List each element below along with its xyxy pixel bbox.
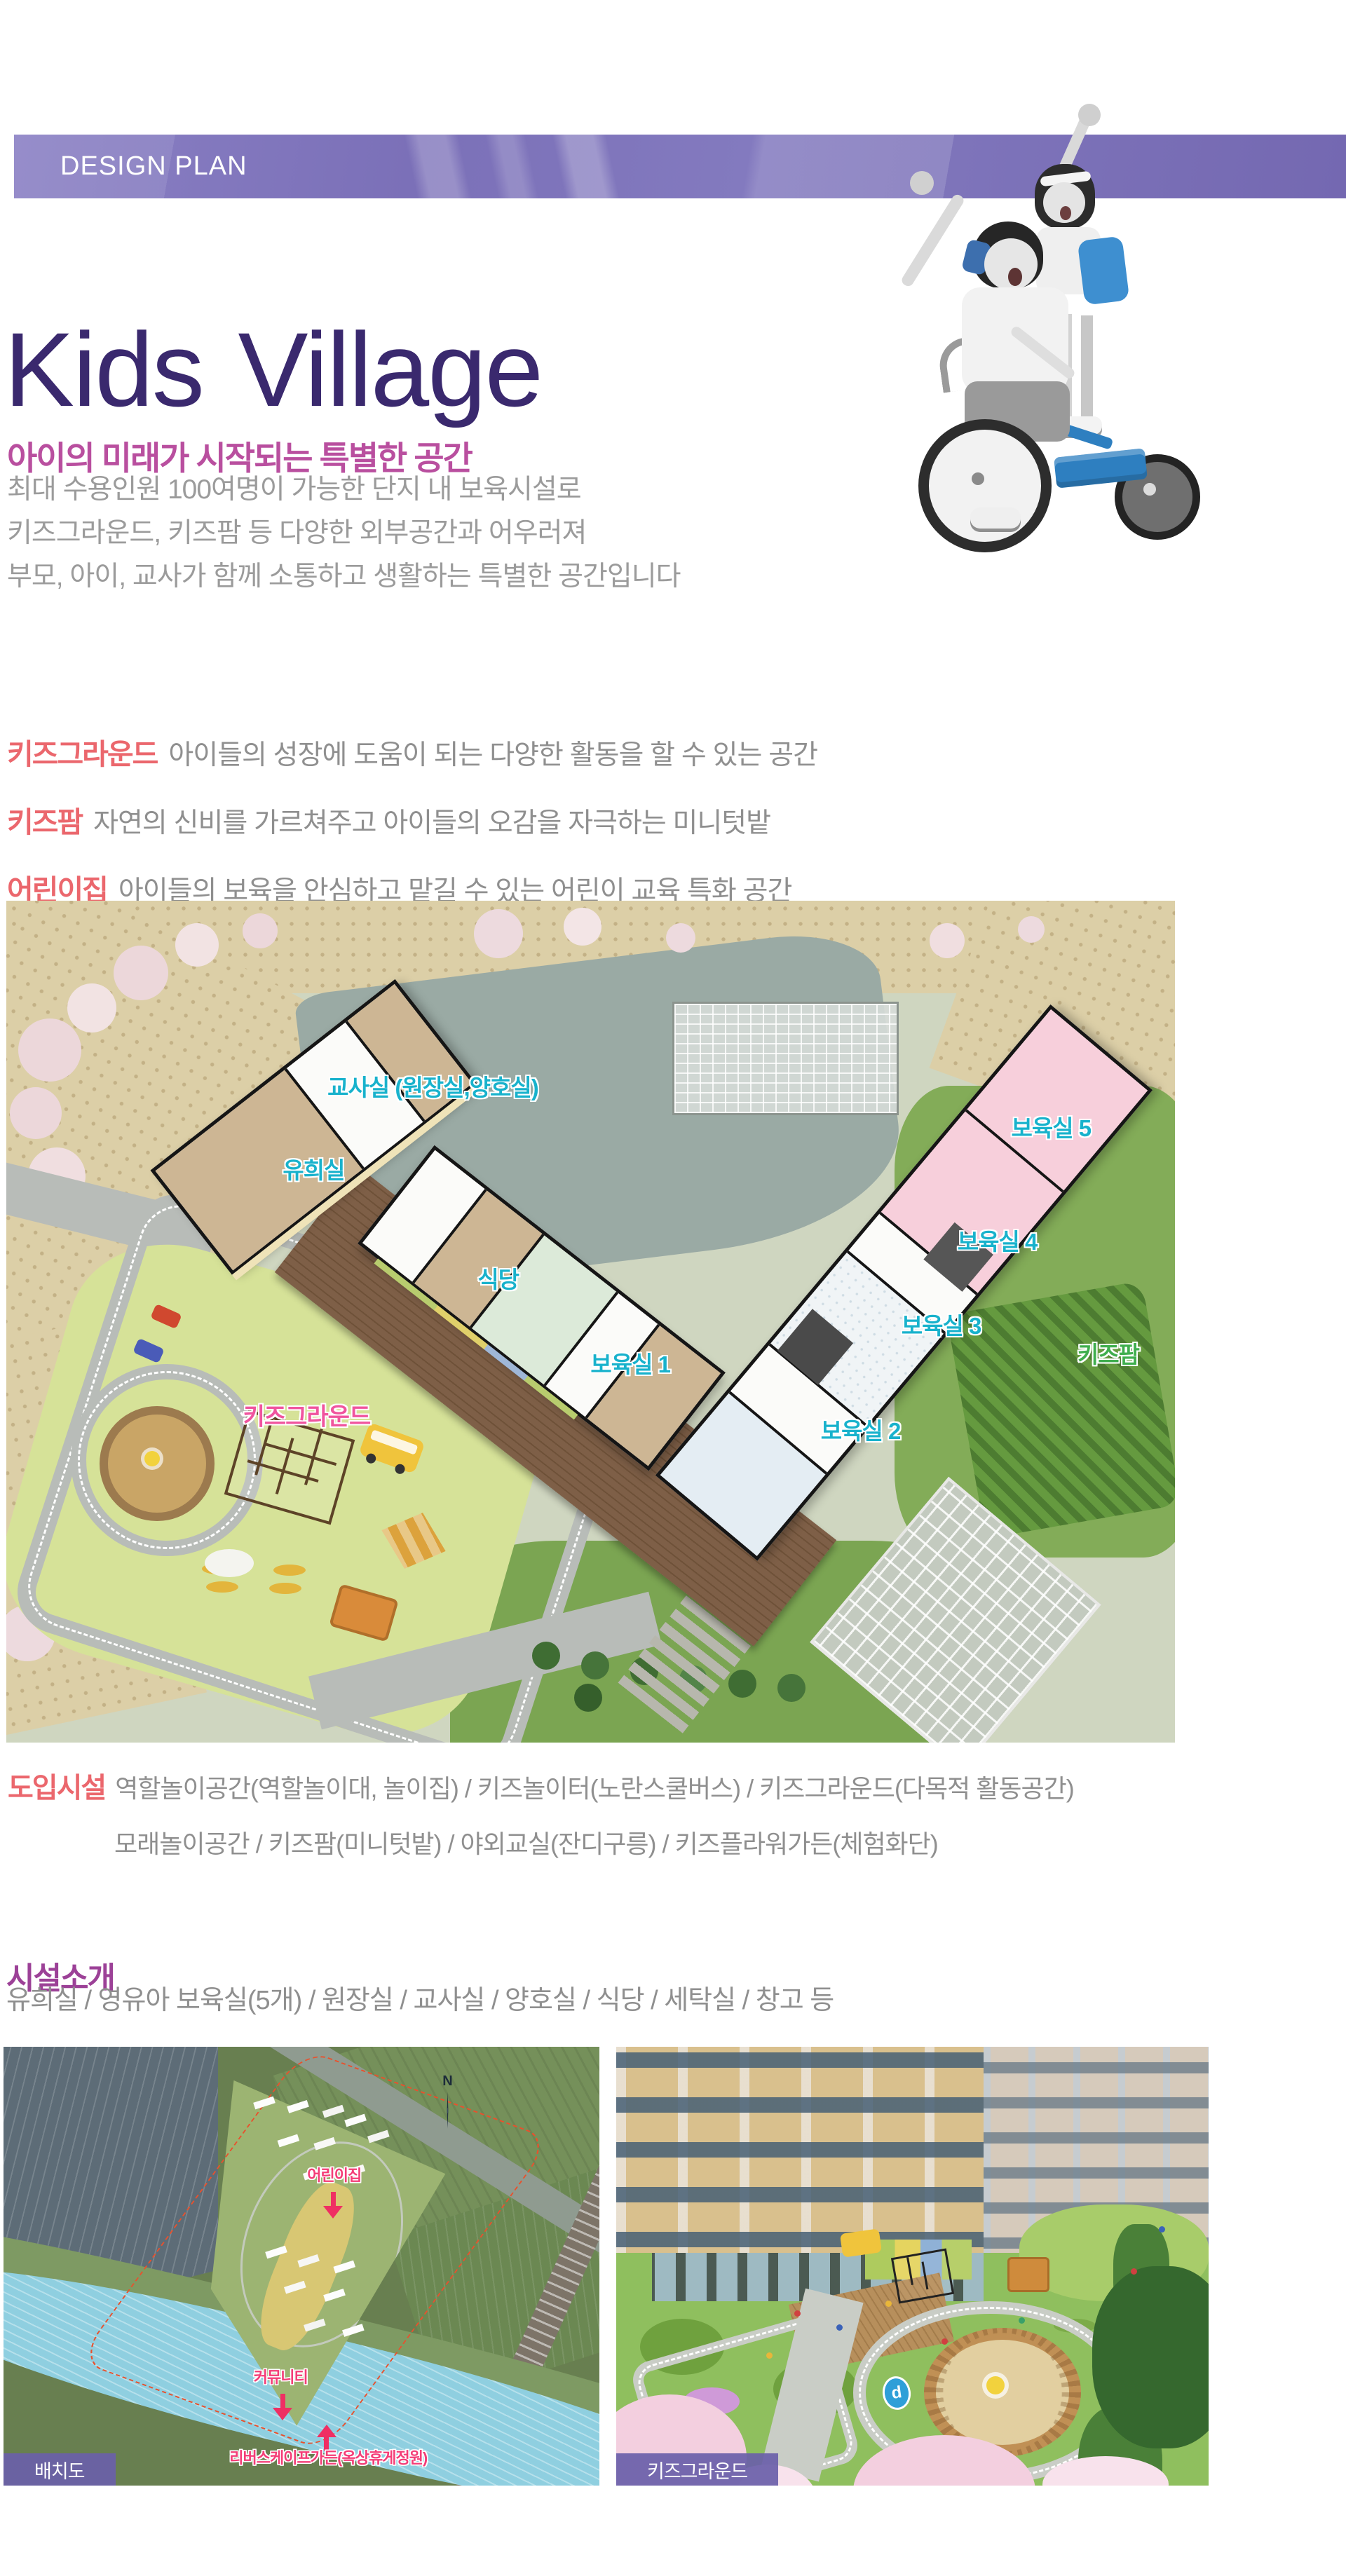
page-title: Kids Village <box>4 315 542 425</box>
plan-label-nursery1: 보육실 1 <box>590 1346 670 1379</box>
children-figures <box>794 2310 801 2317</box>
play-structure <box>1007 2257 1049 2292</box>
kids-photo <box>897 104 1192 587</box>
compass-star-icon <box>445 2092 451 2129</box>
hero-body-line: 키즈그라운드, 키즈팜 등 다양한 외부공간과 어우러져 <box>7 512 681 555</box>
plan-label-nursery3: 보육실 3 <box>902 1307 981 1341</box>
feature-row: 키즈그라운드아이들의 성장에 도움이 되는 다양한 활동을 할 수 있는 공간 <box>7 730 817 772</box>
hero-body-line: 최대 수용인원 100여명이 가능한 단지 내 보육시설로 <box>7 468 681 512</box>
plan-label-teachers-room: 교사실 (원장실,양호실) <box>327 1069 538 1103</box>
feature-desc: 자연의 신비를 가르쳐주고 아이들의 오감을 자극하는 미니텃밭 <box>93 808 770 838</box>
compass: N <box>427 2073 469 2137</box>
feature-desc: 아이들의 성장에 도움이 되는 다양한 활동을 할 수 있는 공간 <box>168 740 817 770</box>
plan-label-nursery2: 보육실 2 <box>821 1412 901 1446</box>
intro-text: 모래놀이공간 / 키즈팜(미니텃밭) / 야외교실(잔디구릉) / 키즈플라워가… <box>114 1829 938 1858</box>
site-label-community: 커뮤니티 <box>254 2365 308 2387</box>
compass-north-label: N <box>427 2073 469 2090</box>
photo-shape <box>1008 268 1022 286</box>
glass-canopy <box>672 1002 899 1115</box>
feature-label: 키즈팜 <box>7 806 82 838</box>
maze <box>891 2249 954 2304</box>
site-plan-badge: 배치도 <box>4 2453 116 2486</box>
site-label-riverscape: 리버스케이프가든(옥상휴게정원) <box>229 2446 427 2468</box>
site-plan-image: N 어린이집 커뮤니티 리버스케이프가든(옥상휴게정원) 배치도 <box>4 2047 599 2486</box>
plan-label-kids-farm: 키즈팜 <box>1078 1336 1139 1370</box>
cherry-blossoms <box>18 1018 81 1082</box>
sand-pit <box>100 1406 215 1521</box>
plan-label-dining: 식당 <box>477 1261 519 1295</box>
plan-label-nursery4: 보육실 4 <box>958 1223 1038 1257</box>
hero-body-line: 부모, 아이, 교사가 함께 소통하고 생활하는 특별한 공간입니다 <box>7 555 681 599</box>
plan-label-nursery5: 보육실 5 <box>1011 1110 1091 1143</box>
plan-label-kids-ground: 키즈그라운드 <box>243 1397 371 1431</box>
photo-shape <box>1078 104 1101 126</box>
arrow-down-icon <box>272 2394 293 2423</box>
photo-shape <box>1060 206 1071 220</box>
photo-shape <box>962 287 1068 393</box>
feature-row: 키즈팜자연의 신비를 가르쳐주고 아이들의 오감을 자극하는 미니텃밭 <box>7 798 817 840</box>
feature-label: 키즈그라운드 <box>7 738 157 770</box>
trees <box>1092 2266 1209 2448</box>
intro-label: 도입시설 <box>8 1773 105 1804</box>
tricycle-front-wheel <box>918 419 1052 552</box>
page: DESIGN PLAN Kids Village 아이의 미래가 시 <box>0 0 1346 2576</box>
intro-facilities: 도입시설역할놀이공간(역할놀이대, 놀이집) / 키즈놀이터(노란스쿨버스) /… <box>8 1765 1074 1860</box>
intro-row: 도입시설역할놀이공간(역할놀이대, 놀이집) / 키즈놀이터(노란스쿨버스) /… <box>8 1765 1074 1806</box>
banner-label: DESIGN PLAN <box>60 135 247 198</box>
trees <box>532 1642 560 1670</box>
apartment-facade <box>616 2047 984 2253</box>
site-label-daycare: 어린이집 <box>307 2163 361 2186</box>
facility-intro-body: 유희실 / 영유아 보육실(5개) / 원장실 / 교사실 / 양호실 / 식당… <box>6 1978 834 2017</box>
picnic-table <box>205 1549 254 1577</box>
intro-row: 모래놀이공간 / 키즈팜(미니텃밭) / 야외교실(잔디구릉) / 키즈플라워가… <box>114 1824 1074 1860</box>
floor-plan-image: 교사실 (원장실,양호실) 유희실 보육실 5 보육실 4 보육실 3 키즈팜 … <box>6 901 1175 1743</box>
hero-body: 최대 수용인원 100여명이 가능한 단지 내 보육시설로 키즈그라운드, 키즈… <box>7 468 681 599</box>
arrow-down-icon <box>322 2192 344 2221</box>
photo-shape <box>1081 315 1093 421</box>
playground-render-image: d 키즈그라운드 <box>616 2047 1209 2486</box>
plan-label-play-room: 유희실 <box>283 1152 344 1185</box>
intro-text: 역할놀이공간(역할놀이대, 놀이집) / 키즈놀이터(노란스쿨버스) / 키즈그… <box>115 1774 1074 1803</box>
photo-shape <box>910 171 934 195</box>
playground-badge: 키즈그라운드 <box>616 2453 778 2486</box>
photo-backpack <box>1078 236 1130 305</box>
photo-shape <box>900 193 966 288</box>
photo-shape <box>970 507 1021 529</box>
cherry-blossoms <box>474 909 523 958</box>
